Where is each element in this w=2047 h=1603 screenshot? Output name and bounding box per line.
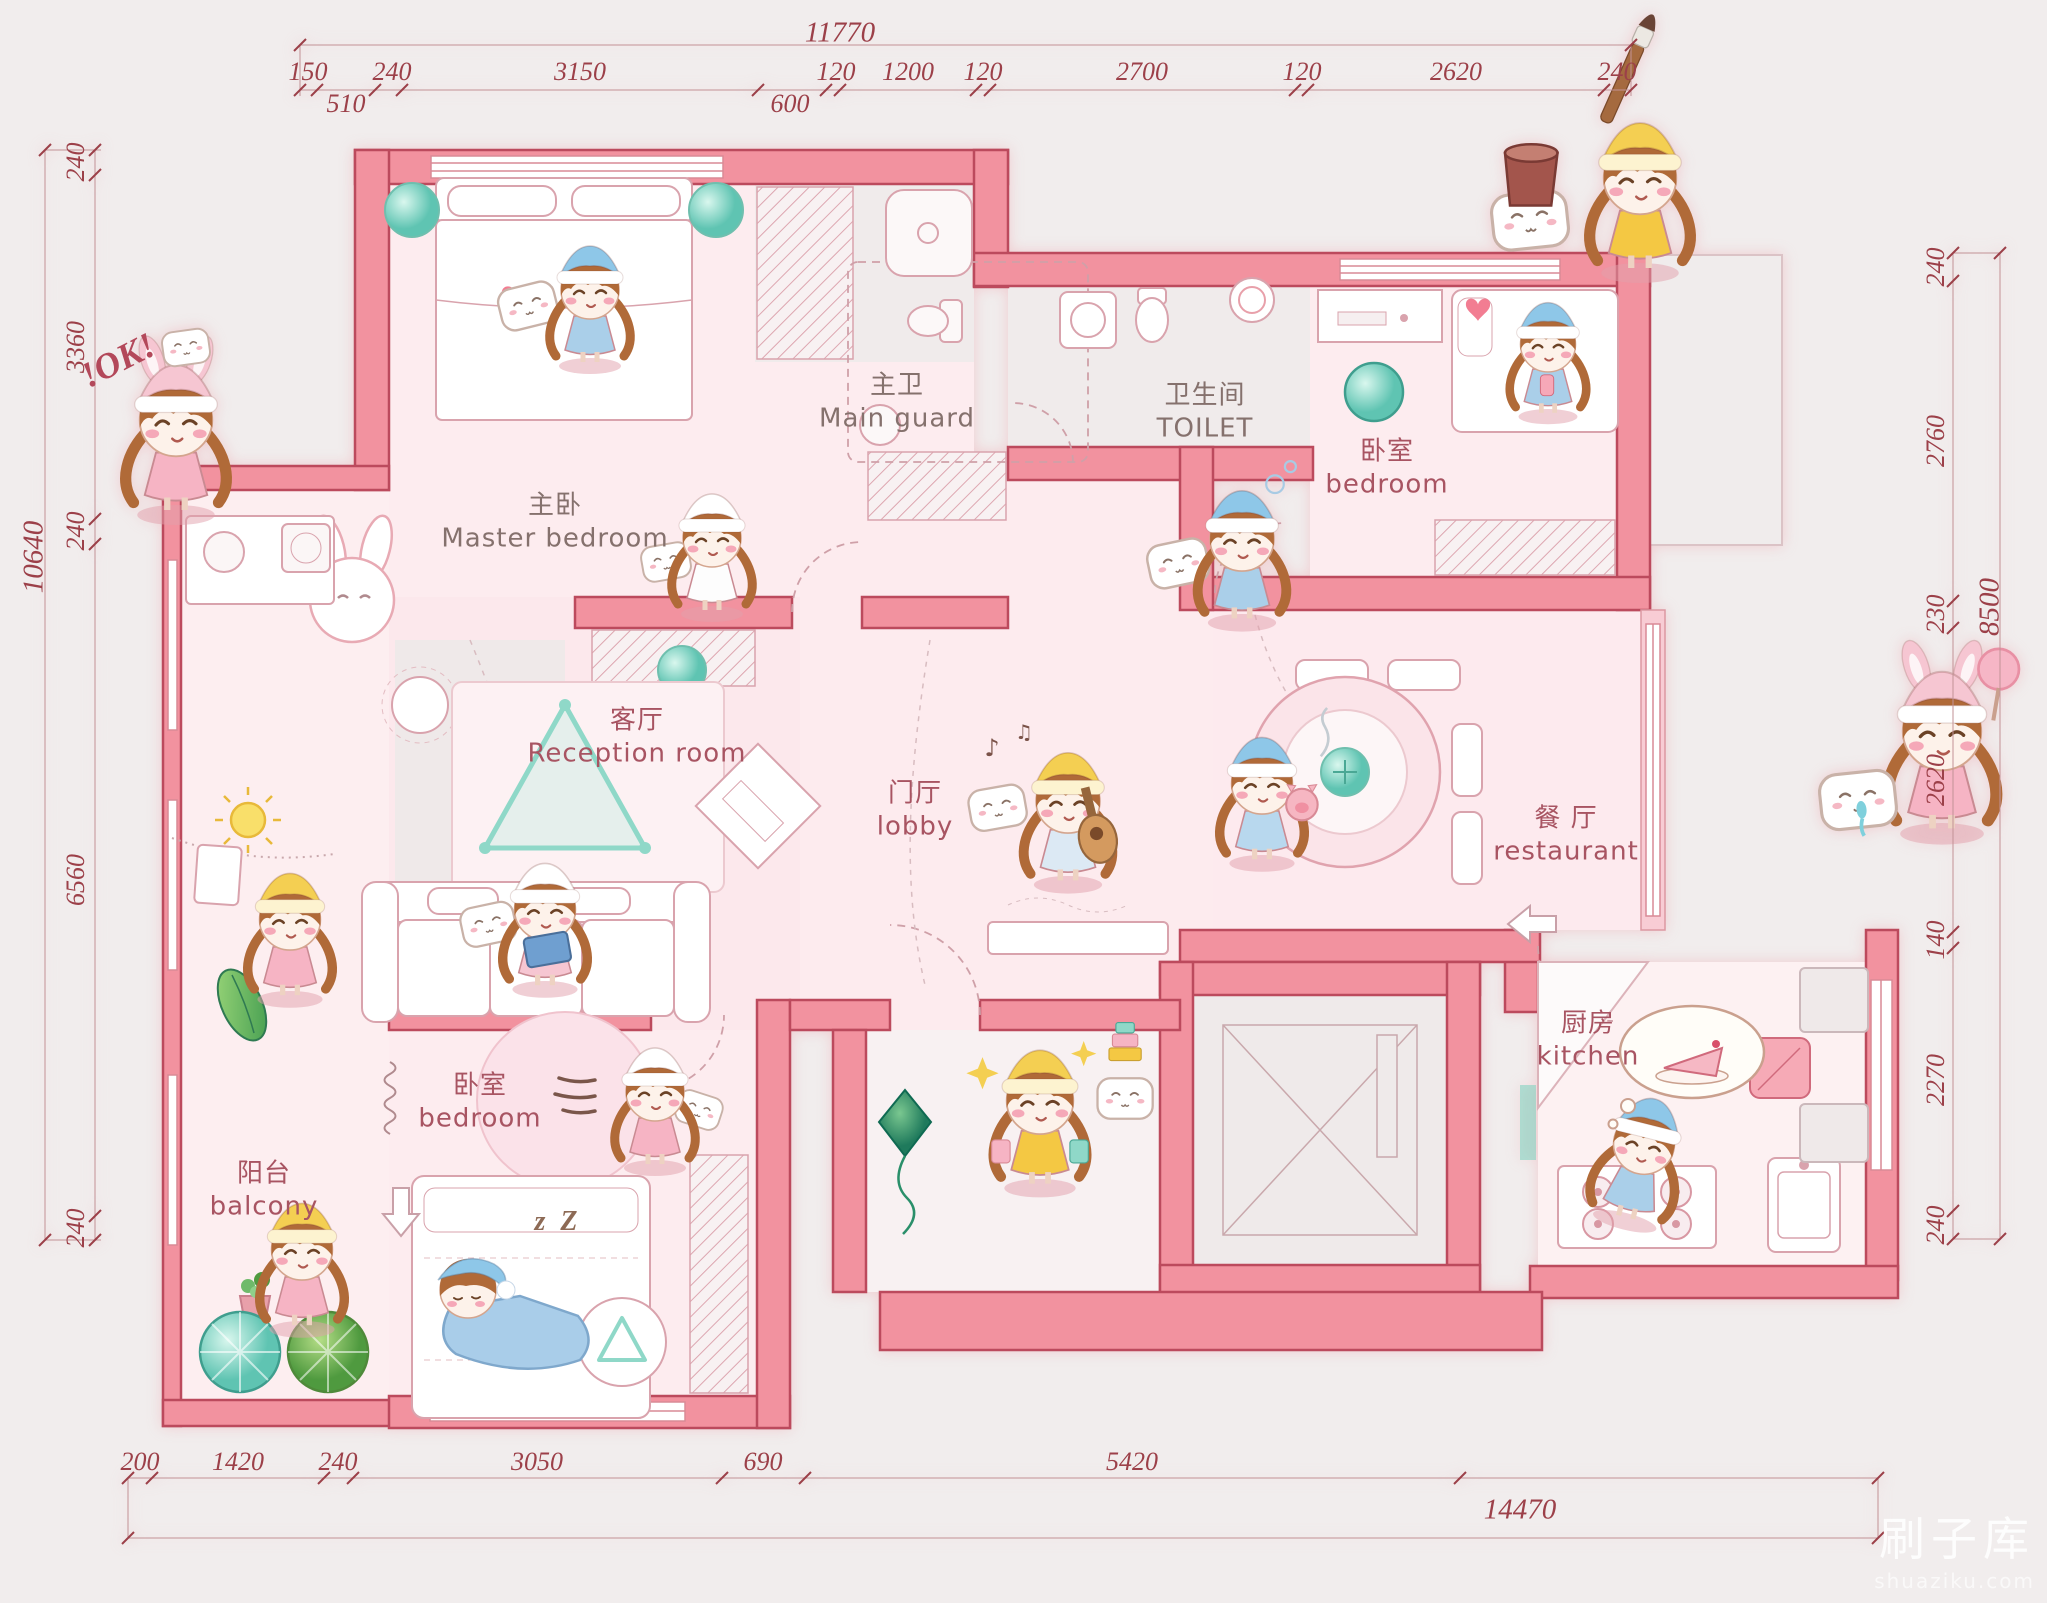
dim-left-0: 240: [61, 143, 91, 182]
dim-bottom-2: 240: [319, 1447, 358, 1477]
dim-right-2: 230: [1921, 595, 1951, 634]
dim-top-10: 2620: [1430, 57, 1482, 87]
chair: [1452, 812, 1482, 884]
washer: [282, 524, 330, 572]
washing-machine: [1060, 292, 1116, 348]
dim-right-overall: 8500: [1974, 578, 2007, 636]
dim-top-5: 120: [817, 57, 856, 87]
book: [523, 931, 572, 968]
kitchen-cabinet-accent: [1520, 1085, 1536, 1160]
dim-right-6: 240: [1921, 1206, 1951, 1245]
wardrobe-master: [757, 187, 853, 359]
dim-bottom-3: 3050: [511, 1447, 563, 1477]
dim-right-5: 2270: [1921, 1054, 1951, 1106]
wardrobe-bedroom-south: [690, 1155, 748, 1393]
shoe-cabinet: [988, 922, 1168, 954]
dim-bottom-0: 200: [121, 1447, 160, 1477]
dim-top-3: 3150: [554, 57, 606, 87]
shopping-bag: [1070, 1140, 1088, 1163]
bedside-table-right: [689, 183, 743, 237]
dim-right-0: 240: [1921, 248, 1951, 287]
pillow-band: [424, 1188, 638, 1232]
paint-bucket-pillow: [1490, 144, 1570, 252]
dim-right-3: 2620: [1921, 754, 1951, 806]
crying-pillow: [1818, 769, 1899, 840]
fridge-top: [1800, 968, 1868, 1032]
fridge-bottom: [1800, 1104, 1868, 1162]
dim-bottom-1: 1420: [212, 1447, 264, 1477]
pouf: [578, 1298, 666, 1386]
toilet-bowl: [908, 306, 948, 336]
dim-right-4: 140: [1921, 921, 1951, 960]
character-girl-painter: [1490, 11, 1690, 283]
floor-plan-drawing: [0, 0, 2047, 1603]
floor-ac-platform: [1650, 255, 1782, 545]
sink: [204, 532, 244, 572]
dim-top-0: 150: [289, 57, 328, 87]
dim-right-1: 2760: [1921, 415, 1951, 467]
shower-drain-icon: [918, 223, 938, 243]
keyboard: [1338, 312, 1386, 325]
piggy-icon: [1286, 785, 1318, 821]
dim-bottom-4: 690: [744, 1447, 783, 1477]
shopping-bag: [992, 1140, 1010, 1163]
cherry: [1712, 1040, 1720, 1048]
label-kitchen: 厨房kitchen: [1537, 1008, 1640, 1073]
wardrobe-bedroom-east: [1435, 520, 1615, 575]
watermark-name: 刷子库: [1874, 1503, 2035, 1569]
mouse: [1400, 314, 1408, 322]
dim-left-overall: 10640: [18, 521, 51, 594]
watermark-url: shuaziku.com: [1874, 1569, 2035, 1593]
dim-top-8: 2700: [1116, 57, 1168, 87]
cotton-candy: [1978, 649, 2019, 690]
basin: [1230, 278, 1274, 322]
desk-chair: [1345, 363, 1403, 421]
dim-top-11: 240: [1598, 57, 1637, 87]
label-balcony: 阳台balcony: [210, 1158, 319, 1223]
zzz-annotation: z Z: [535, 1206, 582, 1238]
towel: [194, 845, 242, 906]
label-restaurant: 餐 厅restaurant: [1493, 803, 1639, 868]
label-master-bedroom: 主卧Master bedroom: [441, 490, 668, 555]
dim-top-4: 600: [771, 89, 810, 119]
label-reception-room: 客厅Reception room: [527, 705, 746, 770]
music-note-icon: ♪: [984, 734, 999, 762]
dim-top-9: 120: [1283, 57, 1322, 87]
dim-top-1: 510: [327, 89, 366, 119]
dim-bottom-5: 5420: [1106, 1447, 1158, 1477]
toilet-bowl: [1136, 298, 1168, 342]
watermark: 刷子库 shuaziku.com: [1874, 1503, 2035, 1593]
dim-left-2: 240: [61, 512, 91, 551]
pouf-teal: [200, 1312, 280, 1392]
side-table: [392, 677, 448, 733]
dim-top-7: 120: [964, 57, 1003, 87]
chair: [1452, 724, 1482, 796]
label-lobby: 门厅lobby: [877, 778, 954, 843]
label-toilet: 卫生间TOILET: [1157, 380, 1254, 445]
floor-plan-canvas: 11770 150 510 240 3150 600 120 1200 120 …: [0, 0, 2047, 1603]
music-note-icon: ♫: [1015, 720, 1033, 744]
dim-left-3: 6560: [61, 854, 91, 906]
dim-top-2: 240: [373, 57, 412, 87]
dim-bottom-overall: 14470: [1484, 1494, 1557, 1527]
phone: [1540, 375, 1553, 396]
label-bedroom-east: 卧室bedroom: [1325, 436, 1448, 501]
bedside-table-left: [385, 183, 439, 237]
dim-top-overall: 11770: [805, 17, 875, 50]
dim-left-4: 240: [61, 1209, 91, 1248]
label-bedroom-south: 卧室bedroom: [418, 1070, 541, 1135]
chair: [1388, 660, 1460, 690]
label-main-guard: 主卫Main guard: [819, 370, 975, 435]
dim-top-6: 1200: [882, 57, 934, 87]
